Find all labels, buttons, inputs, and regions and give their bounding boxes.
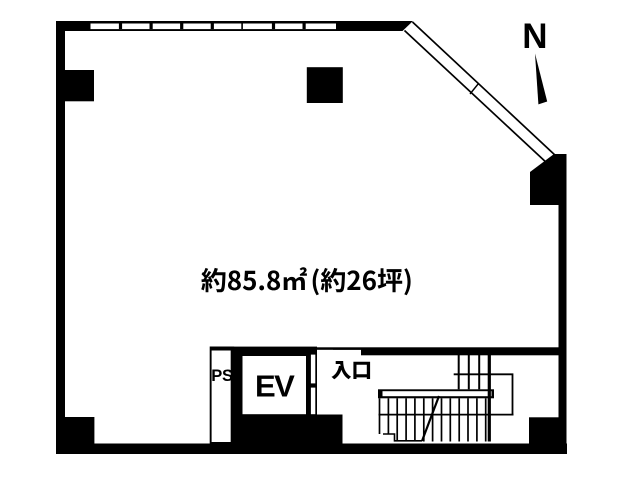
svg-text:PS: PS <box>211 367 233 385</box>
svg-text:N: N <box>522 17 547 56</box>
svg-text:EV: EV <box>255 369 295 404</box>
